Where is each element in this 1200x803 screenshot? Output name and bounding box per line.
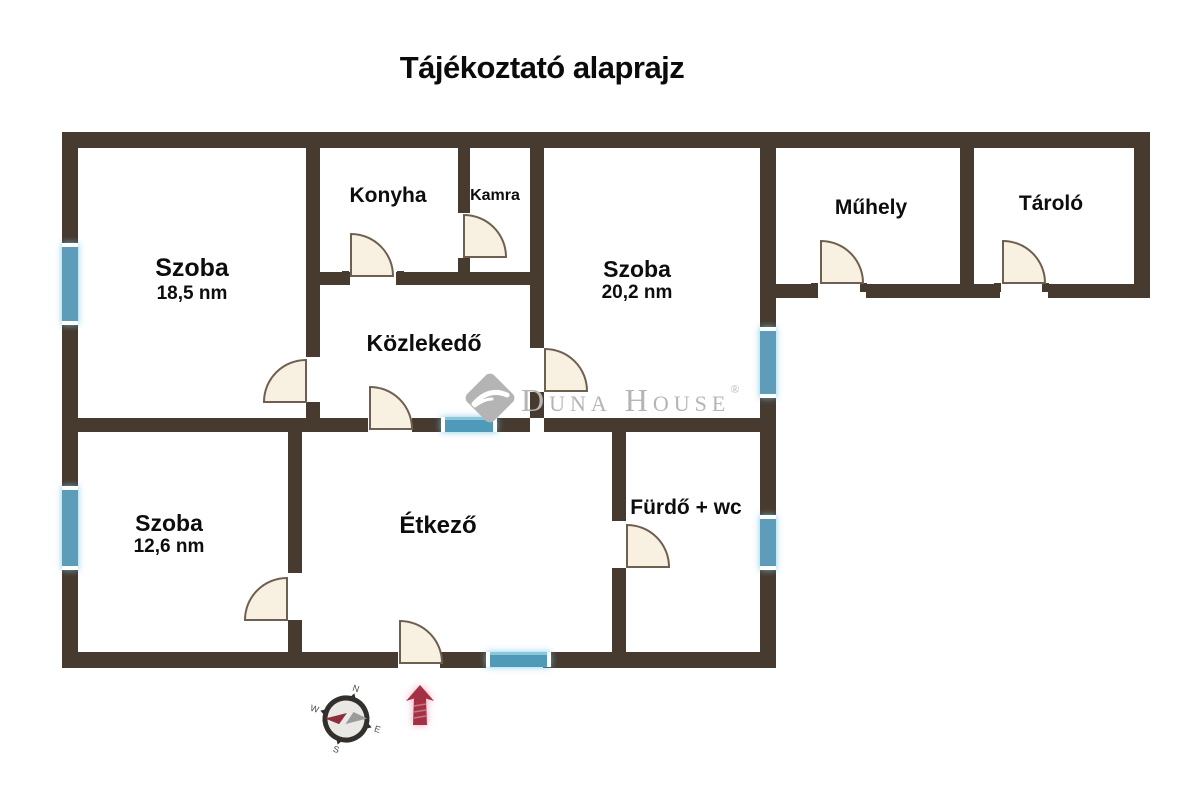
- window: [760, 515, 776, 570]
- room-name: Tároló: [1019, 192, 1083, 216]
- room-name: Szoba: [155, 254, 229, 283]
- dunahouse-logo-text: Duna House®: [521, 382, 739, 419]
- door-frame-mark: [390, 653, 397, 662]
- door-frame-mark: [811, 283, 818, 292]
- room-area: 18,5 nm: [155, 283, 229, 305]
- room-label-tarolo: Tároló: [1019, 192, 1083, 216]
- window: [62, 486, 78, 570]
- wall-exterior-right-main: [760, 148, 776, 331]
- door-szoba3: [243, 575, 289, 621]
- door-frame-mark: [994, 283, 1001, 292]
- wall-szoba3-etkezo: [288, 620, 302, 652]
- registered-mark: ®: [730, 382, 739, 396]
- door-frame-mark: [397, 271, 404, 280]
- wall-exterior-bottom: [543, 652, 776, 668]
- door-konyha: [349, 231, 395, 277]
- floorplan-page: Tájékoztató alaprajz: [0, 0, 1200, 803]
- door-muhely: [819, 238, 865, 284]
- wall-etkezo-furdo: [612, 568, 626, 652]
- room-label-furdo: Fürdő + wc: [630, 496, 741, 520]
- room-name: Kamra: [470, 187, 520, 205]
- dunahouse-logo-icon: [462, 372, 518, 424]
- wall-wing-right: [1134, 148, 1150, 298]
- wall-middle: [544, 418, 760, 432]
- door-tarolo: [1001, 238, 1047, 284]
- room-label-szoba3: Szoba 12,6 nm: [134, 510, 205, 558]
- wall-exterior-right-main: [760, 394, 776, 519]
- door-frame-mark: [342, 271, 349, 280]
- room-area: 20,2 nm: [602, 282, 673, 304]
- wall-middle: [78, 418, 368, 432]
- room-name: Étkező: [399, 512, 476, 540]
- room-name: Fürdő + wc: [630, 496, 741, 520]
- room-label-kozlekedo: Közlekedő: [366, 330, 481, 356]
- room-name: Közlekedő: [366, 330, 481, 356]
- door-szoba1: [262, 357, 308, 403]
- door-frame-mark: [1042, 283, 1049, 292]
- wall-szoba1-konyha: [306, 148, 320, 357]
- compass-w: W: [309, 703, 321, 715]
- room-area: 12,6 nm: [134, 536, 205, 558]
- window: [62, 243, 78, 325]
- wall-muhely-tarolo: [960, 148, 974, 284]
- room-name: Szoba: [602, 256, 673, 282]
- wall-szoba3-etkezo: [288, 432, 302, 573]
- wall-exterior-right-main: [760, 566, 776, 652]
- window: [760, 327, 776, 398]
- north-arrow-icon: [402, 684, 438, 728]
- room-label-kamra: Kamra: [470, 187, 520, 205]
- room-label-etkezo: Étkező: [399, 512, 476, 540]
- wall-etkezo-furdo: [612, 432, 626, 521]
- wall-konyha-kamra: [458, 258, 470, 285]
- page-title: Tájékoztató alaprajz: [0, 50, 1084, 86]
- window: [486, 652, 551, 667]
- wall-szoba1-konyha: [306, 402, 320, 418]
- wall-konyha-kamra: [458, 148, 470, 213]
- room-name: Konyha: [349, 184, 426, 208]
- door-frame-mark: [413, 419, 420, 428]
- compass-n: N: [351, 683, 360, 695]
- door-furdo: [625, 522, 671, 568]
- room-name: Műhely: [835, 196, 907, 220]
- door-frame-mark: [860, 283, 867, 292]
- wall-wing-bottom: [866, 284, 1000, 298]
- brand-name: Duna House: [521, 382, 730, 418]
- door-kozlekedo-etkezo: [368, 384, 414, 430]
- room-label-szoba2: Szoba 20,2 nm: [602, 256, 673, 304]
- room-label-konyha: Konyha: [349, 184, 426, 208]
- wall-exterior-bottom: [62, 652, 398, 668]
- compass-s: S: [332, 744, 341, 755]
- compass-rose: N E S W: [309, 682, 383, 756]
- room-label-muhely: Műhely: [835, 196, 907, 220]
- room-label-szoba1: Szoba 18,5 nm: [155, 254, 229, 305]
- door-etkezo-exterior: [398, 618, 444, 664]
- compass-e: E: [373, 724, 382, 735]
- door-kamra: [462, 212, 508, 258]
- wall-kozlekedo-szoba2: [530, 148, 544, 348]
- room-name: Szoba: [134, 510, 205, 536]
- wall-exterior-left: [62, 148, 78, 668]
- wall-exterior-top: [62, 132, 1150, 148]
- door-frame-mark: [360, 419, 367, 428]
